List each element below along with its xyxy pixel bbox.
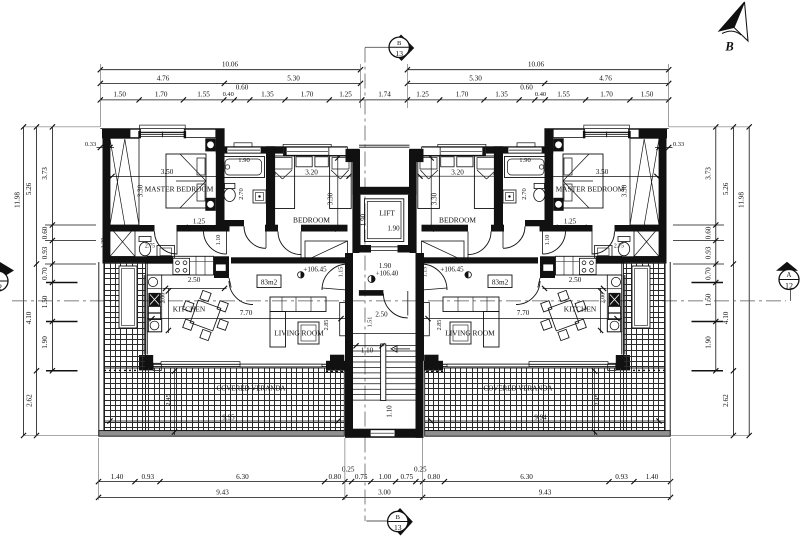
svg-text:1.90: 1.90 bbox=[379, 262, 392, 270]
svg-text:2.85: 2.85 bbox=[436, 320, 443, 331]
svg-text:COVERED VERANDA: COVERED VERANDA bbox=[217, 385, 286, 393]
svg-text:1.70: 1.70 bbox=[301, 90, 314, 98]
svg-text:6.30: 6.30 bbox=[236, 473, 249, 481]
svg-text:3.73: 3.73 bbox=[704, 167, 712, 180]
svg-text:0.80: 0.80 bbox=[428, 473, 441, 481]
svg-text:12: 12 bbox=[0, 283, 2, 292]
svg-text:2.70: 2.70 bbox=[238, 188, 245, 200]
svg-text:9.43: 9.43 bbox=[539, 488, 552, 496]
svg-text:+106.45: +106.45 bbox=[303, 266, 327, 274]
svg-text:1.50: 1.50 bbox=[113, 90, 126, 98]
svg-text:COVERED VERANDA: COVERED VERANDA bbox=[484, 385, 553, 393]
svg-text:1.90: 1.90 bbox=[238, 157, 250, 164]
svg-text:1.90: 1.90 bbox=[360, 213, 368, 226]
svg-text:1.35: 1.35 bbox=[261, 90, 274, 98]
svg-text:11.98: 11.98 bbox=[14, 192, 22, 208]
svg-text:0.33: 0.33 bbox=[85, 141, 96, 148]
svg-text:3.20: 3.20 bbox=[305, 169, 318, 177]
svg-text:0.33: 0.33 bbox=[673, 141, 684, 148]
svg-text:1.10: 1.10 bbox=[361, 346, 374, 354]
svg-text:10.06: 10.06 bbox=[528, 61, 545, 69]
svg-text:12: 12 bbox=[785, 282, 793, 291]
svg-text:1.50: 1.50 bbox=[641, 90, 654, 98]
svg-text:1.70: 1.70 bbox=[456, 90, 469, 98]
svg-text:0.25: 0.25 bbox=[342, 466, 355, 474]
svg-text:4.10: 4.10 bbox=[722, 311, 730, 324]
svg-text:1.90: 1.90 bbox=[387, 224, 400, 232]
svg-text:4.76: 4.76 bbox=[157, 74, 170, 82]
svg-text:1.10: 1.10 bbox=[386, 405, 394, 418]
svg-text:MASTER BEDROOM: MASTER BEDROOM bbox=[145, 185, 214, 194]
svg-text:1.00: 1.00 bbox=[379, 473, 392, 481]
svg-text:5.30: 5.30 bbox=[469, 74, 482, 82]
svg-text:2.50: 2.50 bbox=[375, 311, 388, 319]
svg-text:2.75: 2.75 bbox=[145, 244, 155, 250]
svg-text:0.93: 0.93 bbox=[704, 246, 712, 259]
svg-text:0.93: 0.93 bbox=[142, 473, 155, 481]
svg-text:3.30: 3.30 bbox=[327, 192, 335, 205]
svg-text:LIFT: LIFT bbox=[379, 209, 395, 218]
svg-text:1.70: 1.70 bbox=[600, 90, 613, 98]
svg-text:1.10: 1.10 bbox=[544, 235, 551, 246]
svg-text:LIVING ROOM: LIVING ROOM bbox=[274, 329, 324, 338]
svg-text:6.30: 6.30 bbox=[520, 473, 533, 481]
svg-text:1.15: 1.15 bbox=[338, 267, 345, 278]
svg-text:1.15: 1.15 bbox=[422, 267, 429, 278]
svg-text:KITCHEN: KITCHEN bbox=[173, 305, 206, 314]
svg-text:2.50: 2.50 bbox=[569, 276, 582, 284]
svg-text:5.30: 5.30 bbox=[287, 74, 300, 82]
svg-text:2.00: 2.00 bbox=[600, 293, 607, 304]
svg-text:1.40: 1.40 bbox=[111, 473, 124, 481]
svg-text:0.40: 0.40 bbox=[535, 91, 546, 98]
svg-text:3.50: 3.50 bbox=[596, 168, 609, 176]
svg-text:5.26: 5.26 bbox=[25, 182, 33, 195]
svg-text:LIVING ROOM: LIVING ROOM bbox=[445, 329, 495, 338]
svg-text:1.55: 1.55 bbox=[197, 90, 210, 98]
svg-text:1.90: 1.90 bbox=[704, 336, 712, 349]
svg-text:2.50: 2.50 bbox=[188, 276, 201, 284]
svg-text:13: 13 bbox=[394, 523, 402, 532]
svg-text:2.62: 2.62 bbox=[25, 394, 33, 407]
svg-text:B: B bbox=[724, 40, 733, 54]
svg-text:7.70: 7.70 bbox=[240, 309, 253, 317]
svg-text:3.50: 3.50 bbox=[161, 168, 174, 176]
svg-text:2.75: 2.75 bbox=[614, 244, 624, 250]
svg-text:2.45: 2.45 bbox=[594, 394, 601, 406]
svg-text:3.00: 3.00 bbox=[378, 488, 391, 496]
svg-text:1.40: 1.40 bbox=[646, 473, 659, 481]
svg-text:9.43: 9.43 bbox=[216, 488, 229, 496]
svg-text:1.74: 1.74 bbox=[378, 90, 391, 98]
svg-text:9.94: 9.94 bbox=[534, 414, 547, 422]
svg-text:0.80: 0.80 bbox=[329, 473, 342, 481]
svg-text:MASTER BEDROOM: MASTER BEDROOM bbox=[556, 185, 625, 194]
svg-text:1.25: 1.25 bbox=[339, 90, 352, 98]
svg-text:5.26: 5.26 bbox=[722, 182, 730, 195]
svg-text:1.51: 1.51 bbox=[367, 317, 374, 328]
svg-text:9.95: 9.95 bbox=[222, 414, 235, 422]
svg-text:0.75: 0.75 bbox=[401, 473, 414, 481]
svg-text:2.00: 2.00 bbox=[160, 293, 167, 304]
svg-text:1.25: 1.25 bbox=[416, 90, 429, 98]
svg-text:2.70: 2.70 bbox=[521, 188, 528, 200]
svg-text:1.35: 1.35 bbox=[495, 90, 508, 98]
svg-text:+106.40: +106.40 bbox=[376, 271, 399, 278]
svg-text:1.55: 1.55 bbox=[557, 90, 570, 98]
svg-text:BEDROOM: BEDROOM bbox=[439, 216, 476, 225]
svg-text:11.98: 11.98 bbox=[738, 192, 746, 208]
svg-text:3.20: 3.20 bbox=[451, 169, 464, 177]
svg-text:83m2: 83m2 bbox=[261, 279, 278, 287]
svg-text:0.70: 0.70 bbox=[704, 267, 712, 280]
svg-text:1.20: 1.20 bbox=[659, 238, 666, 249]
svg-text:0.60: 0.60 bbox=[41, 226, 49, 239]
svg-text:2.45: 2.45 bbox=[165, 394, 172, 406]
svg-text:7.70: 7.70 bbox=[517, 309, 530, 317]
svg-text:3.30: 3.30 bbox=[137, 184, 145, 197]
svg-text:3.73: 3.73 bbox=[41, 167, 49, 180]
svg-text:4.10: 4.10 bbox=[25, 311, 33, 324]
svg-text:1.25: 1.25 bbox=[564, 218, 577, 226]
svg-text:A: A bbox=[787, 272, 792, 279]
svg-text:10.06: 10.06 bbox=[222, 61, 239, 69]
svg-text:0.25: 0.25 bbox=[414, 466, 427, 474]
svg-text:1.90: 1.90 bbox=[519, 157, 531, 164]
svg-text:BEDROOM: BEDROOM bbox=[293, 216, 330, 225]
svg-text:0.75: 0.75 bbox=[355, 473, 368, 481]
svg-text:3.30: 3.30 bbox=[430, 192, 438, 205]
svg-text:2.85: 2.85 bbox=[323, 320, 330, 331]
svg-text:1.25: 1.25 bbox=[193, 218, 206, 226]
svg-text:1.10: 1.10 bbox=[215, 235, 222, 246]
svg-text:+106.45: +106.45 bbox=[440, 266, 464, 274]
svg-text:1.70: 1.70 bbox=[155, 90, 168, 98]
svg-text:B: B bbox=[396, 514, 401, 521]
svg-text:0.60: 0.60 bbox=[704, 226, 712, 239]
svg-text:3.30: 3.30 bbox=[621, 184, 629, 197]
svg-text:83m2: 83m2 bbox=[492, 279, 509, 287]
svg-text:B: B bbox=[397, 40, 402, 47]
svg-text:KITCHEN: KITCHEN bbox=[564, 305, 597, 314]
svg-text:2.62: 2.62 bbox=[722, 394, 730, 407]
svg-text:4.76: 4.76 bbox=[599, 74, 612, 82]
svg-text:0.60: 0.60 bbox=[236, 83, 249, 91]
svg-text:0.60: 0.60 bbox=[520, 83, 533, 91]
svg-text:0.70: 0.70 bbox=[41, 267, 49, 280]
svg-text:1.20: 1.20 bbox=[100, 238, 107, 249]
svg-text:1.90: 1.90 bbox=[41, 336, 49, 349]
svg-text:1.50: 1.50 bbox=[41, 295, 49, 308]
svg-text:13: 13 bbox=[395, 49, 403, 58]
svg-text:0.93: 0.93 bbox=[41, 246, 49, 259]
svg-text:1.50: 1.50 bbox=[704, 293, 712, 306]
svg-text:0.40: 0.40 bbox=[223, 91, 234, 98]
svg-text:0.93: 0.93 bbox=[615, 473, 628, 481]
